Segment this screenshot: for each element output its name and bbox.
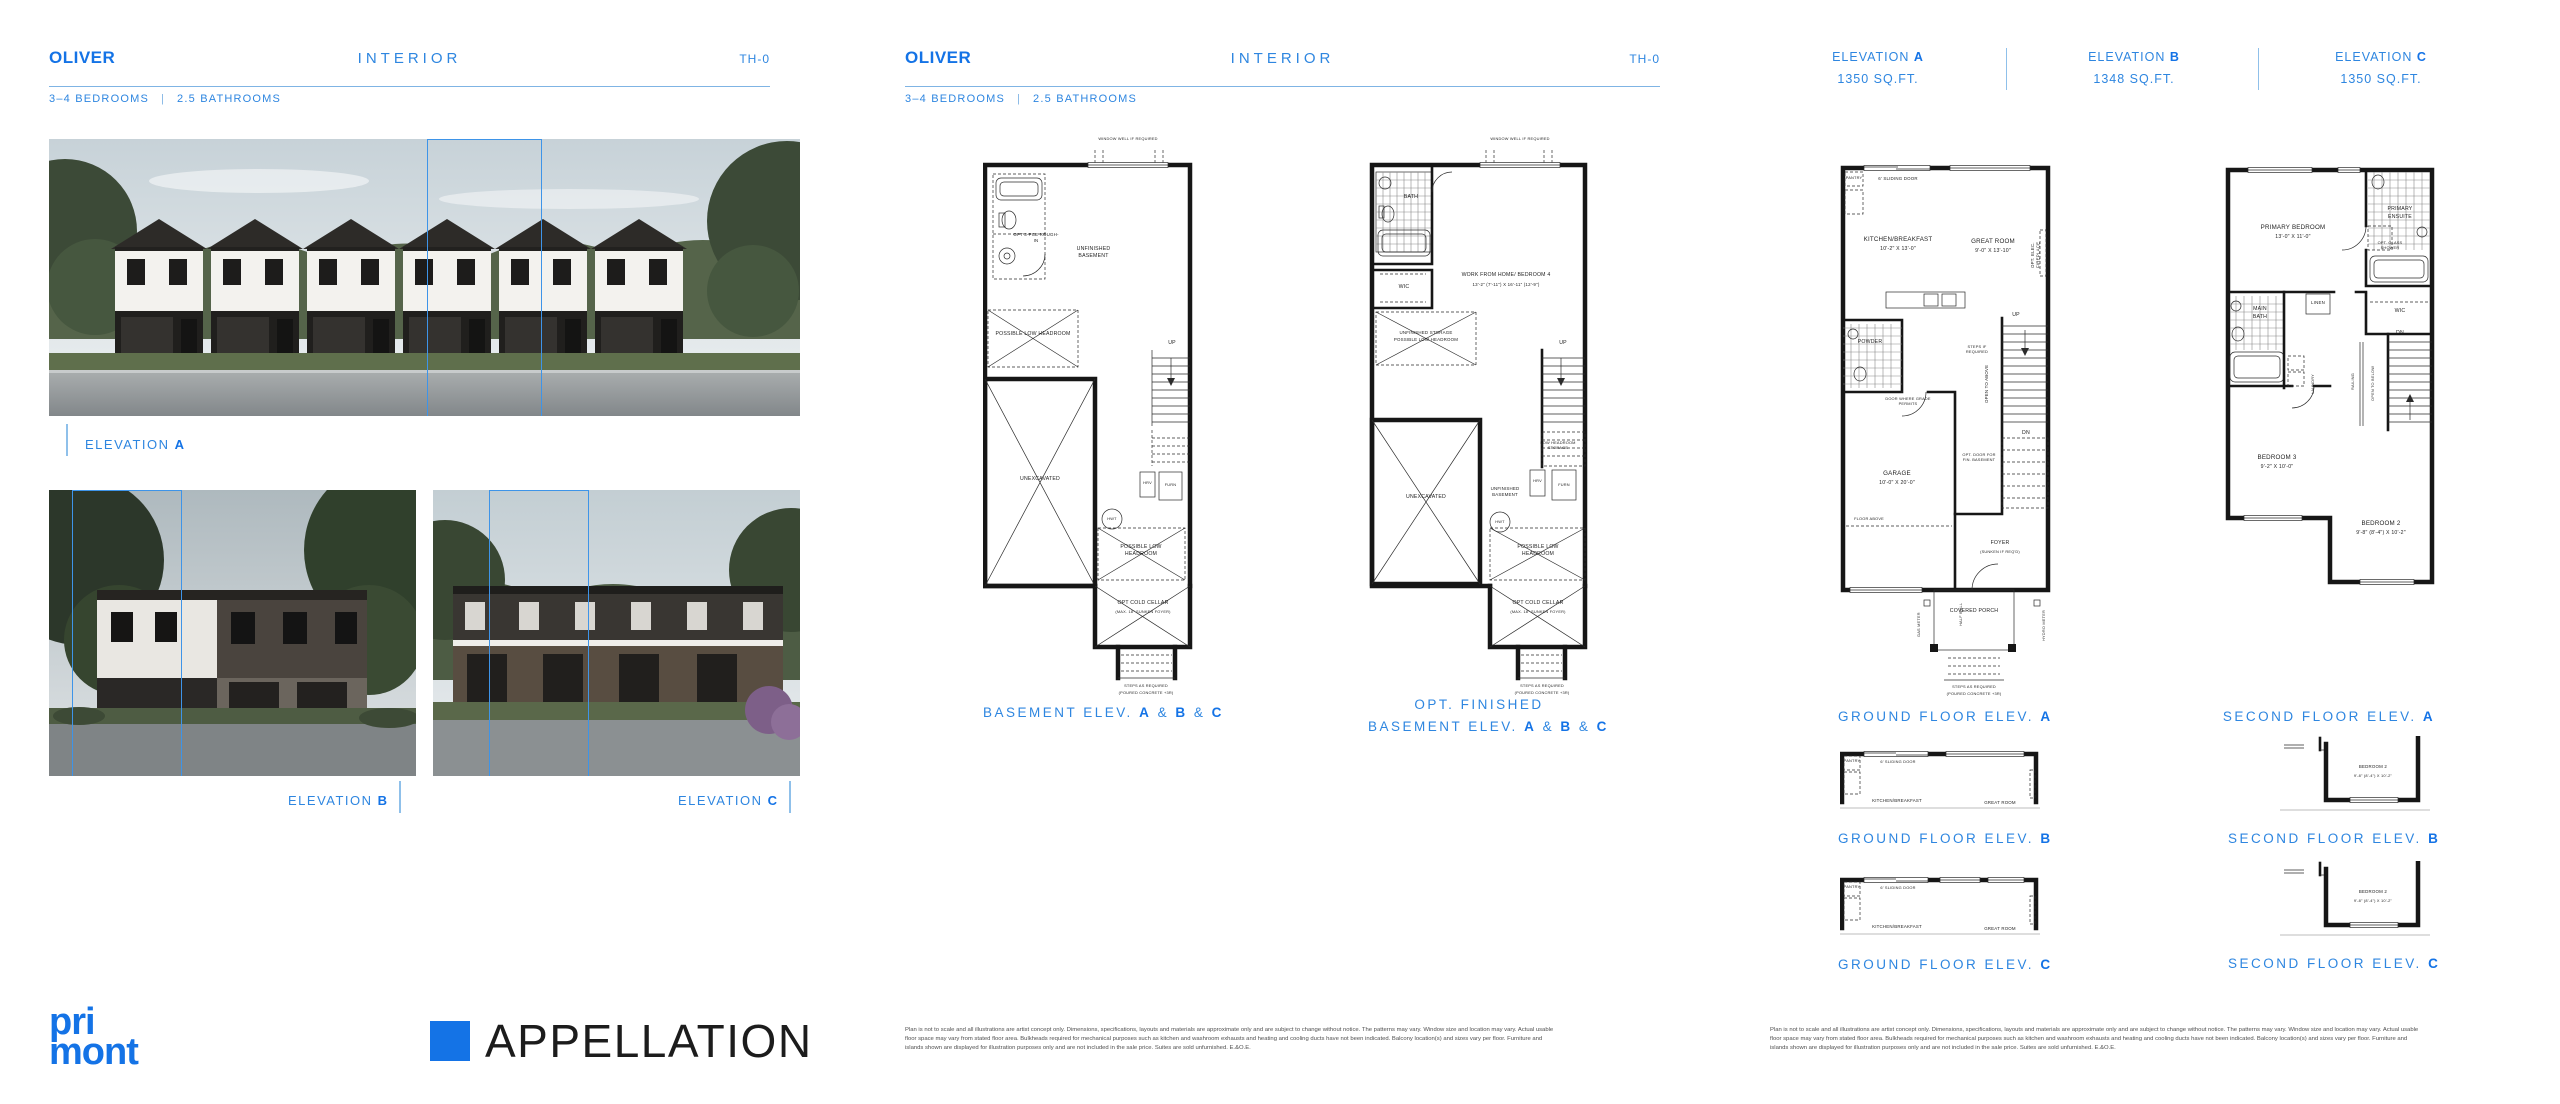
caption-letter-c: C [1212, 705, 1224, 720]
plan-label: GAS METER [1916, 604, 1921, 646]
primont-logo: pri mont [49, 1008, 138, 1067]
plan-label: 10'-0" X 20'-0" [1866, 480, 1928, 487]
elevation-b-label: ELEVATION B [288, 793, 389, 808]
plan-label: WINDOW WELL IF REQUIRED [1480, 136, 1560, 141]
specs-line: 3–4 BEDROOMS|2.5 BATHROOMS [49, 93, 281, 105]
caption-letter: B [2428, 831, 2440, 846]
plan-label: OPT. GLASS SHOWER [2370, 240, 2410, 250]
plan-label: STEPS IF REQUIRED [1956, 344, 1998, 354]
plan-label: DN [2016, 430, 2036, 437]
plan-label: KITCHEN/BREAKFAST [1864, 924, 1930, 930]
plan-label: HALF WALL [1958, 594, 1963, 634]
plan-label: 10'-2" X 13'-0" [1862, 246, 1934, 253]
plan-label: 9'-8" (8'-4") X 10'-2" [2336, 898, 2410, 903]
plan-label: WINDOW WELL IF REQUIRED [1088, 136, 1168, 141]
elevation-word: ELEVATION [288, 793, 373, 808]
plan-label: ENSUITE [2380, 214, 2420, 221]
plan-label: OPT 3-PCE ROUGH-IN [1013, 232, 1059, 243]
plan-label: OPT. ELEC. FIREPLACE [2030, 232, 2041, 278]
elevation-word: ELEVATION [2335, 50, 2412, 64]
basement-plan-drawing [983, 134, 1203, 710]
plan-label: LINEN [2306, 300, 2330, 306]
plan-label: UP [2006, 312, 2026, 319]
second-floor-drawing-a [2222, 134, 2436, 714]
plan-label: OPT COLD CELLAR [1504, 600, 1572, 607]
sqft-value: 1348 SQ.FT. [2034, 68, 2234, 90]
caption-amp: & [1194, 705, 1206, 720]
specs-beds: 3–4 BEDROOMS [905, 93, 1005, 105]
caption-letter: A [2423, 709, 2435, 724]
plan-label: WIC [2384, 308, 2416, 315]
plan-label: LOW HEADROOM STORAGE [1536, 440, 1580, 450]
second-floor-partial-b: BEDROOM 2 9'-8" (8'-4") X 10'-2" [2280, 736, 2430, 816]
plan-label: PRIMARY BEDROOM [2257, 224, 2329, 232]
elevation-letter: A [1914, 50, 1924, 64]
plan-label: 13'-2" (7'-11") X 16'-11" (12'-9") [1460, 282, 1552, 288]
plan-label: BEDROOM 3 [2246, 454, 2308, 462]
header-divider [2006, 48, 2007, 90]
basement-floor-plan: WINDOW WELL IF REQUIRED OPT 3-PCE ROUGH-… [983, 134, 1203, 710]
model-code: TH-0 [49, 52, 770, 66]
caption-text: GROUND FLOOR ELEV. [1838, 831, 2034, 846]
plan-label: GARAGE [1866, 470, 1928, 478]
elevation-a-label: ELEVATION A [85, 437, 186, 452]
plan-label: OPT. DOOR FOR FIN. BASEMENT [1958, 452, 2000, 462]
elevation-letter: A [175, 437, 186, 452]
sqft-elevation-a: ELEVATION A 1350 SQ.FT. [1778, 46, 1978, 90]
plan-label: GREAT ROOM [1958, 238, 2028, 246]
plan-label: FURN [1552, 482, 1576, 487]
plan-label: PANTRY [1843, 758, 1861, 763]
ground-floor-partial-c: PANTRY 6' SLIDING DOOR KITCHEN/BREAKFAST… [1840, 868, 2040, 944]
plan-label: STEPS AS REQUIRED [1939, 684, 2009, 689]
elevation-letter: C [2417, 50, 2427, 64]
plan-label: POWDER [1848, 339, 1892, 346]
header-divider [2258, 48, 2259, 90]
plan-label: BATH [1396, 194, 1426, 201]
specs-line-2: 3–4 BEDROOMS|2.5 BATHROOMS [905, 93, 1137, 105]
plan-label: GREAT ROOM [1974, 800, 2026, 806]
disclaimer-text: Plan is not to scale and all illustratio… [905, 1026, 1560, 1053]
plan-label: HRV [1140, 480, 1155, 485]
elevation-word: ELEVATION [85, 437, 170, 452]
header-rule-2 [905, 86, 1660, 87]
second-c-caption: SECOND FLOOR ELEV. C [2228, 953, 2432, 975]
plan-label: FURN [1159, 482, 1182, 487]
elevation-letter: C [768, 793, 779, 808]
second-a-caption: SECOND FLOOR ELEV. A [2222, 706, 2436, 728]
second-floor-plan-a: PRIMARY BEDROOM 13'-0" X 11'-0" PRIMARY … [2222, 134, 2436, 714]
plan-label: 6' SLIDING DOOR [1870, 759, 1926, 764]
plan-label: BEDROOM 2 [2342, 889, 2404, 895]
plan-label: UNFINISHED BASEMENT [1482, 486, 1528, 497]
plan-label: KITCHEN/BREAKFAST [1860, 236, 1936, 244]
plan-label: HWT [1490, 519, 1510, 524]
opt-finished-basement-drawing [1368, 134, 1590, 710]
basement-caption: BASEMENT ELEV. A & B & C [983, 702, 1203, 724]
ground-a-caption: GROUND FLOOR ELEV. A [1838, 706, 2052, 728]
plan-label: UP [1157, 340, 1187, 347]
caption-text: SECOND FLOOR ELEV. [2228, 831, 2422, 846]
caption-amp: & [1543, 719, 1555, 734]
caption-letter: C [2428, 956, 2440, 971]
elevation-word: ELEVATION [1832, 50, 1909, 64]
elevation-letter: B [2170, 50, 2180, 64]
caption-letter-c: C [1597, 719, 1609, 734]
caption-letter: A [2040, 709, 2052, 724]
plan-label: BEDROOM 2 [2342, 764, 2404, 770]
plan-label: BATH [2244, 314, 2276, 321]
disclaimer-text: Plan is not to scale and all illustratio… [1770, 1026, 2420, 1053]
plan-label: STEPS AS REQUIRED [1111, 683, 1181, 688]
elevation-c-tick [789, 781, 791, 813]
ground-floor-plan-a: PANTRY 6' SLIDING DOOR KITCHEN/BREAKFAST… [1838, 134, 2052, 714]
opt-basement-caption: OPT. FINISHED BASEMENT ELEV. A & B & C [1368, 694, 1590, 738]
plan-label: POSSIBLE LOW HEADROOM [1380, 337, 1472, 343]
specs-beds: 3–4 BEDROOMS [49, 93, 149, 105]
caption-text: GROUND FLOOR ELEV. [1838, 957, 2034, 972]
plan-label: UNEXCAVATED [1395, 494, 1457, 501]
plan-label: (MAX. 18" SUNKEN FOYER) [1500, 609, 1576, 614]
specs-baths: 2.5 BATHROOMS [177, 93, 281, 105]
caption-letter: C [2040, 957, 2052, 972]
plan-label: POSSIBLE LOW HEADROOM [1110, 544, 1172, 558]
logo-line-2: mont [49, 1038, 138, 1068]
elevation-c-label: ELEVATION C [678, 793, 779, 808]
header-rule [49, 86, 770, 87]
sqft-value: 1350 SQ.FT. [2281, 68, 2481, 90]
elevation-word: ELEVATION [678, 793, 763, 808]
plan-label: PANTRY [1845, 175, 1863, 180]
caption-text: OPT. FINISHED [1414, 697, 1543, 712]
plan-label: WORK FROM HOME/ BEDROOM 4 [1458, 272, 1554, 279]
plan-label: 6' SLIDING DOOR [1870, 885, 1926, 890]
caption-text: GROUND FLOOR ELEV. [1838, 709, 2034, 724]
caption-letter-b: B [1560, 719, 1572, 734]
specs-separator: | [1017, 93, 1021, 105]
elevation-word: ELEVATION [2088, 50, 2165, 64]
ground-partial-drawing-c [1840, 868, 2040, 944]
second-floor-partial-c: BEDROOM 2 9'-8" (8'-4") X 10'-2" [2280, 861, 2430, 941]
plan-label: UP [1548, 340, 1578, 347]
specs-baths: 2.5 BATHROOMS [1033, 93, 1137, 105]
caption-amp: & [1158, 705, 1170, 720]
caption-amp: & [1579, 719, 1591, 734]
elevation-b-photo: INTERIOR [49, 490, 416, 776]
ground-floor-partial-b: PANTRY 6' SLIDING DOOR KITCHEN/BREAKFAST… [1840, 742, 2040, 818]
elevation-letter: B [378, 793, 389, 808]
model-code-2: TH-0 [905, 52, 1660, 66]
plan-label: UNFINISHED STORAGE [1384, 330, 1468, 336]
plan-label: STEPS AS REQUIRED [1507, 683, 1577, 688]
project-logo: APPELLATION [430, 1014, 813, 1068]
sqft-elevation-c: ELEVATION C 1350 SQ.FT. [2281, 46, 2481, 90]
second-b-caption: SECOND FLOOR ELEV. B [2228, 828, 2432, 850]
plan-label: (POURED CONCRETE +3R) [1107, 690, 1185, 695]
interior-unit-highlight-c: INTERIOR [489, 490, 589, 776]
ground-c-caption: GROUND FLOOR ELEV. C [1838, 954, 2042, 976]
plan-label: HWT [1102, 516, 1122, 521]
interior-unit-highlight-b: INTERIOR [72, 490, 182, 776]
elevation-a-photo: INTERIOR [49, 139, 800, 416]
plan-label: OPT COLD CELLAR [1109, 600, 1177, 607]
plan-label: 6' SLIDING DOOR [1866, 176, 1930, 182]
plan-label: 13'-0" X 11'-0" [2259, 234, 2327, 241]
caption-letter-a: A [1139, 705, 1151, 720]
plan-label: FLOOR ABOVE [1848, 516, 1890, 521]
plan-label: KITCHEN/BREAKFAST [1864, 798, 1930, 804]
plan-label: OPEN TO ABOVE [1984, 354, 1990, 414]
specs-separator: | [161, 93, 165, 105]
sqft-value: 1350 SQ.FT. [1778, 68, 1978, 90]
opt-finished-basement-plan: WINDOW WELL IF REQUIRED BATH WORK FROM H… [1368, 134, 1590, 710]
caption-letter: B [2040, 831, 2052, 846]
ground-floor-drawing-a [1838, 134, 2052, 714]
caption-text: BASEMENT ELEV. [983, 705, 1133, 720]
elevation-a-tick [66, 424, 68, 456]
plan-label: 9'-0" X 13'-10" [1958, 248, 2028, 255]
plan-label: WIC [1389, 284, 1419, 291]
brochure-page: OLIVER INTERIOR TH-0 3–4 BEDROOMS|2.5 BA… [0, 0, 2560, 1104]
plan-label: POSSIBLE LOW HEADROOM [1507, 544, 1569, 558]
plan-label: POSSIBLE LOW HEADROOM [995, 331, 1071, 338]
plan-label: (POURED CONCRETE +3R) [1935, 691, 2013, 696]
plan-label: COVERED PORCH [1948, 608, 2000, 615]
plan-label: PANTRY [1843, 884, 1861, 889]
plan-label: 9'-8" (8'-4") X 10'-2" [2336, 773, 2410, 778]
project-logo-square [430, 1021, 470, 1061]
interior-unit-highlight-a: INTERIOR [427, 139, 542, 416]
elevation-a-render [49, 139, 800, 416]
plan-label: UNFINISHED BASEMENT [1061, 246, 1126, 260]
plan-label: BEDROOM 2 [2350, 520, 2412, 528]
plan-label: FOYER [1978, 540, 2022, 547]
plan-label: PRIMARY [2380, 206, 2420, 213]
plan-label: LAUNDRY [2310, 360, 2315, 408]
elevation-c-photo: INTERIOR [433, 490, 800, 776]
caption-text: BASEMENT ELEV. [1368, 719, 1518, 734]
plan-label: (MAX. 18" SUNKEN FOYER) [1105, 609, 1181, 614]
plan-label: RAILING [2350, 360, 2355, 404]
ground-b-caption: GROUND FLOOR ELEV. B [1838, 828, 2042, 850]
elevation-b-tick [399, 781, 401, 813]
plan-label: GREAT ROOM [1974, 926, 2026, 932]
caption-text: SECOND FLOOR ELEV. [2223, 709, 2417, 724]
plan-label: DOOR WHERE GRADE PERMITS [1880, 396, 1936, 406]
plan-label: OPEN TO BELOW [2370, 354, 2375, 412]
plan-label: HRV [1530, 478, 1545, 483]
plan-label: HYDRO METER [2041, 604, 2046, 648]
project-logo-text: APPELLATION [485, 1014, 813, 1068]
caption-letter-a: A [1524, 719, 1536, 734]
ground-partial-drawing-b [1840, 742, 2040, 818]
sqft-elevation-b: ELEVATION B 1348 SQ.FT. [2034, 46, 2234, 90]
caption-text: SECOND FLOOR ELEV. [2228, 956, 2422, 971]
plan-label: MAIN [2244, 306, 2276, 313]
plan-label: DN [2390, 330, 2410, 337]
plan-label: 9'-2" X 10'-0" [2246, 464, 2308, 471]
plan-label: (SUNKEN IF REQ'D) [1974, 549, 2026, 554]
plan-label: 9'-8" (8'-4") X 10'-2" [2344, 530, 2418, 537]
plan-label: UNEXCAVATED [1008, 476, 1072, 483]
caption-letter-b: B [1175, 705, 1187, 720]
